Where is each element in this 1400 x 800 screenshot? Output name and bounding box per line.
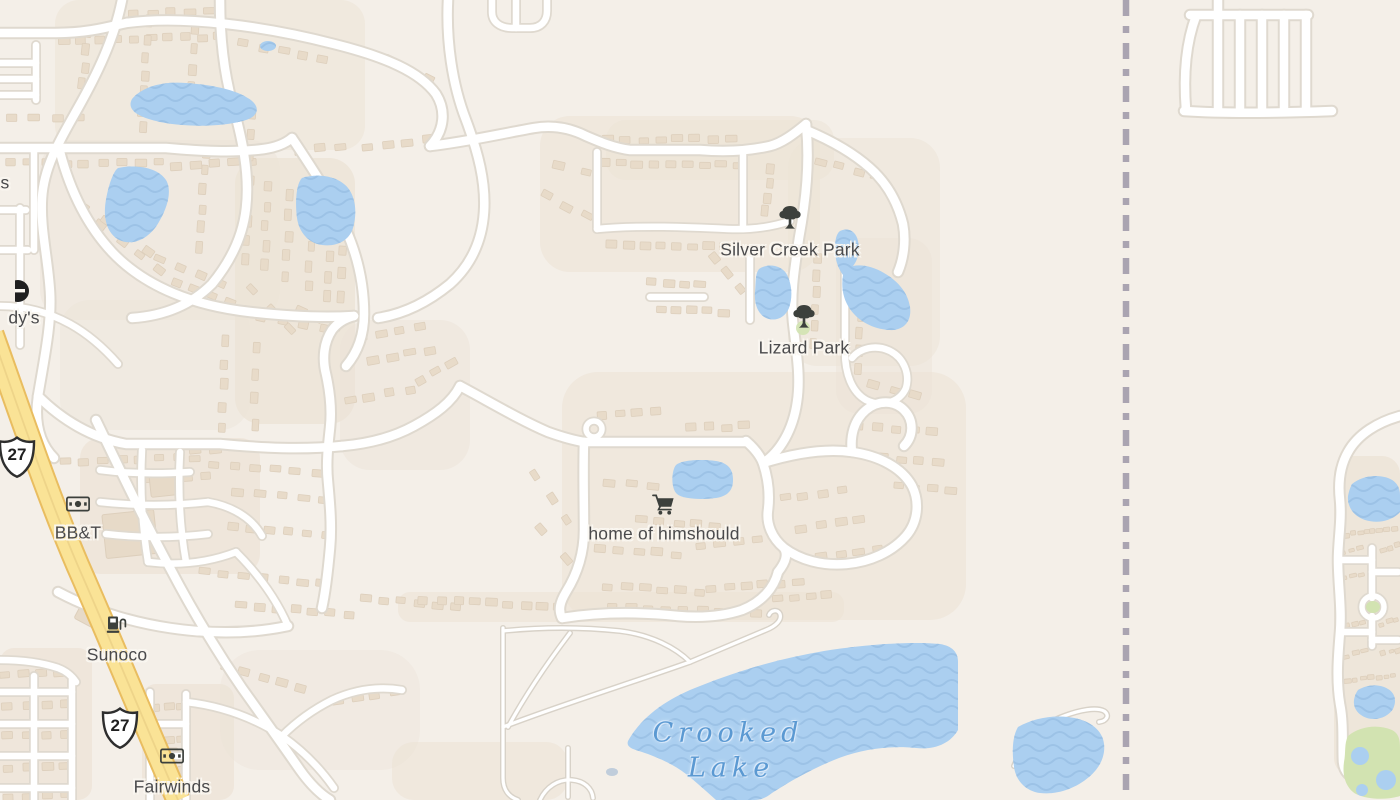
poi-label: Fairwinds (134, 777, 211, 798)
lake-name-label: Lake (688, 753, 774, 784)
poi-label: BB&T (55, 523, 102, 544)
route-number: 27 (101, 716, 139, 736)
poi-label: s (1, 173, 10, 194)
us-route-27-shield: 27 (0, 436, 36, 478)
shopping-cart-icon (652, 494, 676, 516)
bank-icon (66, 497, 90, 512)
map-canvas[interactable]: Silver Creek Park Lizard Park home of hi… (0, 0, 1400, 800)
us-route-27-shield: 27 (101, 707, 139, 749)
map-base-layer (0, 0, 1400, 800)
poi-label: Silver Creek Park (720, 240, 860, 261)
fuel-icon (106, 614, 128, 634)
lake-name-label: Crooked (653, 718, 804, 749)
poi-label: home of himshould (588, 524, 739, 545)
tree-icon (778, 205, 803, 233)
poi-label: Lizard Park (759, 338, 850, 359)
bank-icon (160, 749, 184, 764)
route-number: 27 (0, 445, 36, 465)
tree-icon (792, 304, 817, 332)
poi-label: Sunoco (87, 645, 148, 666)
partial-logo-icon (15, 279, 33, 303)
poi-label: dy's (8, 308, 39, 329)
